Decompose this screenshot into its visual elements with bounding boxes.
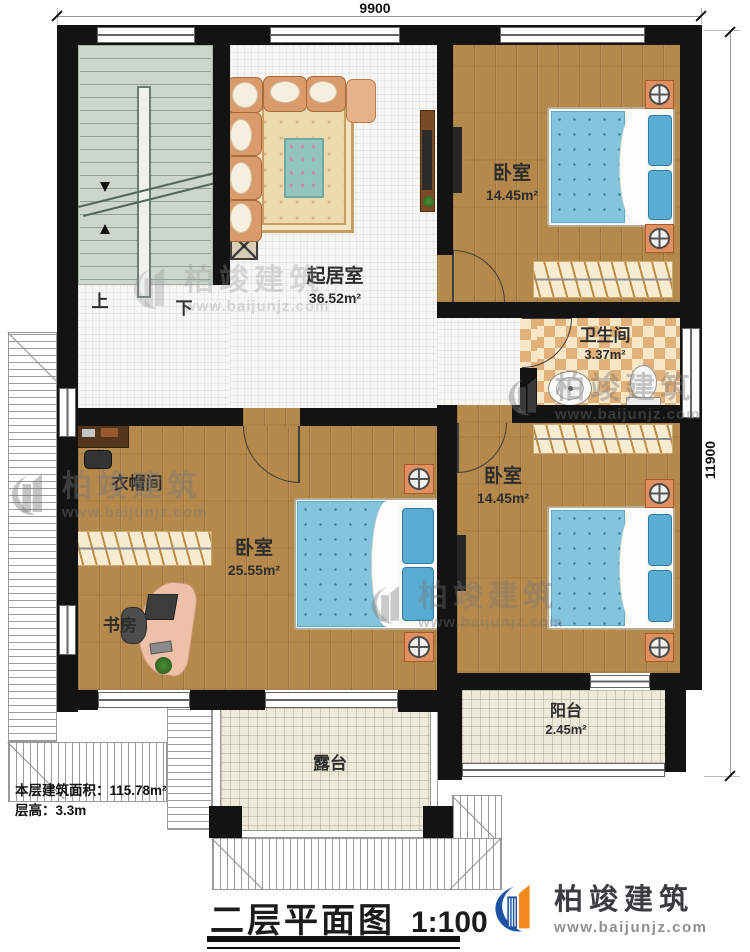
bed-sheet-fold — [619, 111, 646, 223]
wall-bedroom-right-south-b — [650, 673, 702, 690]
wall-south-a — [57, 690, 98, 710]
nightstand — [404, 632, 434, 662]
stair-arrow-down-icon — [100, 182, 110, 192]
roof-eave-terrace-west — [167, 700, 212, 830]
nightstand — [404, 464, 434, 494]
nightstand — [645, 80, 674, 109]
window-top-bedroom — [500, 27, 645, 43]
table-lamp-icon — [649, 637, 670, 658]
watermark-url: www.baijunjz.com — [555, 407, 700, 423]
watermark: 柏竣建筑www.baijunjz.com — [130, 262, 329, 318]
table-lamp-icon — [408, 636, 430, 658]
note-floor-area: 本层建筑面积：115.78m² — [15, 779, 167, 799]
watermark-name: 柏竣建筑 — [418, 581, 563, 613]
floor-plan-canvas: 起居室 36.52m² 卧室 14.45m² 卫生间 3.37m² 卧室 14.… — [0, 0, 750, 952]
sofa-pillow — [270, 81, 300, 103]
living-rug-center — [284, 138, 324, 198]
watermark-url: www.baijunjz.com — [62, 505, 207, 521]
plant-icon — [155, 657, 172, 674]
room-label-study: 书房 — [65, 616, 175, 636]
wall-hall-south-east — [300, 408, 437, 426]
dimension-line-top — [57, 16, 702, 17]
nightstand — [645, 224, 674, 253]
wall-hall-south-west — [57, 408, 243, 426]
room-label-bedroom-top: 卧室 14.45m² — [452, 163, 572, 203]
dimension-line-right — [730, 32, 731, 777]
sofa-pillow — [230, 203, 252, 233]
room-name: 卧室 — [443, 466, 563, 488]
wall-living-bedroom-top — [437, 45, 453, 255]
extension-line — [704, 30, 740, 31]
plant-icon — [423, 196, 434, 207]
room-label-balcony: 阳台 2.45m² — [510, 703, 622, 738]
brand-url: www.baijunjz.com — [554, 920, 707, 935]
terrace-pillar-east — [423, 806, 453, 838]
stair-up-text: 上 — [88, 292, 112, 312]
room-name: 露台 — [275, 754, 385, 774]
wall-south-b — [190, 690, 265, 710]
doorway-bedroom-main — [243, 408, 300, 426]
room-label-terrace: 露台 — [275, 754, 385, 774]
bed-pillow — [402, 508, 434, 564]
table-lamp-icon — [649, 483, 670, 504]
window-top-living — [270, 27, 400, 43]
brand-name: 柏竣建筑 — [554, 886, 707, 915]
roof-eave-left — [8, 332, 57, 742]
terrace-door — [265, 692, 398, 708]
room-area: 14.45m² — [452, 187, 572, 203]
stair-arrow-up-icon — [100, 224, 110, 234]
door-leaf-bedroom-top — [452, 250, 454, 302]
wardrobe-bedroom-right — [533, 424, 673, 454]
watermark-logo-icon — [505, 372, 547, 424]
sofa-pillow — [232, 82, 258, 108]
sofa-chaise — [346, 79, 376, 123]
wall-stair-east — [213, 45, 230, 285]
balcony-door — [590, 675, 650, 688]
watermark: 柏竣建筑www.baijunjz.com — [8, 468, 207, 524]
room-label-bathroom: 卫生间 3.37m² — [550, 326, 660, 362]
dressing-table-items — [101, 428, 118, 437]
dimension-top-value: 9900 — [340, 0, 410, 16]
tv-living — [422, 130, 432, 190]
sofa-pillow — [309, 81, 337, 103]
note-floor-height: 层高：3.3m — [15, 799, 86, 819]
window-study-south — [98, 692, 190, 708]
scale-text: 1:100 — [411, 906, 488, 940]
terrace-parapet-south — [212, 830, 438, 838]
room-area: 3.37m² — [550, 348, 660, 363]
sofa-pillow — [230, 119, 252, 151]
wall-balcony-east — [665, 690, 686, 772]
room-name: 书房 — [65, 616, 175, 636]
watermark-name: 柏竣建筑 — [555, 373, 700, 405]
door-leaf-bedroom-main — [298, 426, 300, 483]
room-area: 14.45m² — [443, 490, 563, 506]
watermark-name: 柏竣建筑 — [62, 471, 207, 503]
wall-balcony-west — [438, 685, 462, 780]
doorway-bedroom-right — [457, 405, 512, 423]
title-underline-thin — [207, 947, 460, 949]
watermark-url: www.baijunjz.com — [418, 615, 563, 631]
brand-logo: 柏竣建筑 www.baijunjz.com — [490, 880, 707, 940]
title-underline-thick — [207, 936, 460, 942]
bed-sheet-fold — [619, 510, 646, 626]
window-top-stair — [97, 27, 195, 43]
wardrobe-cloakroom — [76, 531, 212, 566]
dressing-table-items — [82, 429, 95, 437]
doorway-bedroom-top — [437, 253, 453, 302]
stair-label-up: 上 — [88, 292, 112, 312]
title-block: 二层平面图 1:100 — [210, 893, 488, 942]
room-name: 卧室 — [452, 163, 572, 185]
room-area: 2.45m² — [510, 723, 622, 738]
window-left-hall — [59, 388, 76, 437]
dimension-right-value: 11900 — [702, 422, 718, 498]
sofa-pillow — [230, 162, 252, 194]
bed-pillow — [648, 170, 672, 220]
nightstand — [645, 479, 674, 508]
watermark-name: 柏竣建筑 — [184, 265, 329, 297]
room-label-bedroom-main: 卧室 25.55m² — [194, 538, 314, 578]
room-name: 阳台 — [510, 703, 622, 721]
extension-line — [704, 776, 740, 777]
nightstand — [645, 633, 674, 662]
bed-pillow — [648, 570, 672, 622]
wall-bedrooms-divider — [437, 405, 457, 690]
watermark-logo-icon — [8, 468, 54, 524]
table-lamp-icon — [649, 84, 670, 105]
room-name: 卧室 — [194, 538, 314, 560]
bed-pillow — [648, 115, 672, 166]
terrace-pillar-west — [209, 806, 242, 838]
table-lamp-icon — [408, 468, 430, 490]
room-area: 25.55m² — [194, 562, 314, 578]
wall-bedroom-top-south — [437, 302, 702, 318]
bed-pillow — [648, 514, 672, 566]
watermark: 柏竣建筑www.baijunjz.com — [368, 580, 563, 632]
table-lamp-icon — [649, 228, 670, 249]
brand-logo-icon — [490, 880, 544, 940]
wardrobe-bedroom-top — [533, 261, 673, 298]
page-title: 二层平面图 — [210, 893, 395, 942]
window-balcony-south — [462, 763, 665, 777]
stool — [84, 450, 112, 469]
watermark-logo-icon — [130, 262, 176, 318]
watermark-logo-icon — [368, 580, 410, 632]
watermark-url: www.baijunjz.com — [184, 299, 329, 315]
room-name: 卫生间 — [550, 326, 660, 346]
watermark: 柏竣建筑www.baijunjz.com — [505, 372, 700, 424]
room-label-bedroom-right: 卧室 14.45m² — [443, 466, 563, 506]
